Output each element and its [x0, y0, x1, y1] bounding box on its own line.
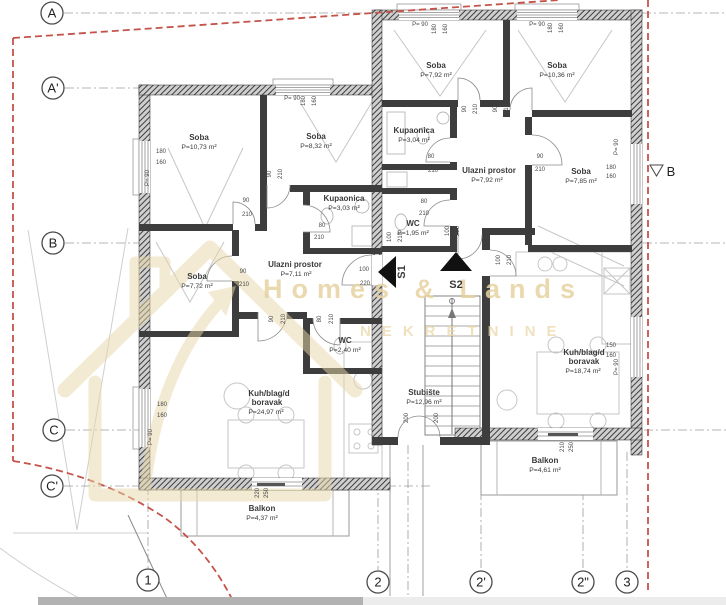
svg-text:2": 2": [577, 575, 589, 590]
watermark-subtitle-text: NEKRETNINE: [360, 323, 568, 340]
svg-text:100: 100: [359, 267, 370, 273]
svg-text:P= 90: P= 90: [148, 428, 154, 445]
svg-text:250: 250: [569, 441, 575, 452]
svg-text:100: 100: [445, 225, 451, 236]
svg-text:2': 2': [476, 575, 486, 590]
svg-text:160: 160: [559, 22, 565, 33]
svg-text:210: 210: [504, 103, 510, 114]
svg-text:210: 210: [314, 235, 325, 241]
floorplan-drawing: Homes & Lands NEKRETNINE S1 S2 B SobaP=1…: [0, 0, 726, 605]
sink-kupaonica-right: [437, 112, 449, 124]
svg-text:Balkon: Balkon: [249, 504, 276, 513]
svg-text:80: 80: [428, 154, 435, 160]
grid-col-2-dblprime: 2": [572, 571, 594, 593]
svg-text:P=7,92 m²: P=7,92 m²: [471, 177, 503, 184]
svg-text:P=12,96 m²: P=12,96 m²: [406, 399, 442, 406]
svg-text:3: 3: [623, 575, 630, 590]
section-marker-b: B: [650, 164, 675, 179]
svg-text:160: 160: [157, 413, 168, 419]
window: [273, 79, 333, 95]
scrollbar-track[interactable]: [363, 597, 726, 605]
wall-top-left-unit: [139, 85, 382, 95]
svg-text:C: C: [49, 423, 58, 438]
svg-text:180: 180: [157, 402, 168, 408]
svg-text:220: 220: [360, 281, 371, 287]
svg-text:210: 210: [473, 103, 479, 114]
svg-text:Ulazni prostor: Ulazni prostor: [462, 166, 516, 175]
svg-text:A': A': [47, 81, 58, 96]
svg-text:Balkon: Balkon: [532, 456, 559, 465]
grid-col-2: 2: [367, 571, 389, 593]
svg-text:P=7,11 m²: P=7,11 m²: [280, 271, 312, 278]
toilet-wc-right: [395, 214, 407, 230]
svg-text:90: 90: [243, 198, 250, 204]
balcony-door: [538, 428, 593, 440]
svg-text:160: 160: [443, 23, 449, 34]
svg-text:200: 200: [404, 412, 410, 423]
svg-text:Soba: Soba: [426, 61, 446, 70]
svg-text:P=4,37 m²: P=4,37 m²: [246, 515, 278, 522]
svg-text:Soba: Soba: [187, 272, 207, 281]
svg-text:Ulazni prostor: Ulazni prostor: [268, 260, 322, 269]
window: [515, 4, 579, 20]
grid-row-a: A: [41, 2, 63, 24]
svg-text:P=24,97 m²: P=24,97 m²: [248, 409, 284, 416]
svg-text:180: 180: [301, 95, 307, 106]
watermark-brand-text: Homes & Lands: [263, 274, 584, 304]
svg-text:210: 210: [239, 282, 250, 288]
svg-text:C': C': [46, 479, 58, 494]
section-marker-label: B: [667, 164, 676, 179]
svg-text:B: B: [49, 236, 58, 251]
svg-text:210: 210: [560, 441, 566, 452]
window: [631, 144, 642, 204]
svg-text:WC: WC: [406, 219, 420, 228]
scrollbar-lead-gap: [0, 597, 38, 605]
svg-text:160: 160: [156, 160, 167, 166]
svg-text:90: 90: [267, 170, 273, 177]
svg-text:P= 90: P= 90: [529, 22, 546, 28]
svg-text:P=10,73 m²: P=10,73 m²: [181, 144, 217, 151]
wall-central-spine: [372, 10, 382, 445]
svg-text:Stubište: Stubište: [408, 388, 440, 397]
s2-label: S2: [449, 279, 462, 291]
svg-text:210: 210: [278, 168, 284, 179]
svg-text:P=7,85 m²: P=7,85 m²: [565, 178, 597, 185]
svg-text:P=3,03 m²: P=3,03 m²: [328, 205, 360, 212]
svg-text:90: 90: [462, 105, 468, 112]
svg-text:160: 160: [606, 353, 617, 359]
svg-text:160: 160: [312, 95, 318, 106]
washer-right: [387, 172, 407, 187]
svg-text:Soba: Soba: [306, 132, 326, 141]
grid-col-2-prime: 2': [470, 571, 492, 593]
svg-text:Soba: Soba: [571, 167, 591, 176]
svg-text:P= 90: P= 90: [412, 22, 429, 28]
grid-row-b: B: [42, 232, 64, 254]
svg-text:180: 180: [606, 165, 617, 171]
svg-text:P= 90: P= 90: [614, 358, 620, 375]
svg-text:100: 100: [496, 254, 502, 265]
svg-text:P=3,04 m²: P=3,04 m²: [398, 137, 430, 144]
svg-text:220: 220: [255, 487, 261, 498]
wall-right-exterior: [631, 10, 642, 455]
svg-text:90: 90: [493, 105, 499, 112]
svg-text:boravak: boravak: [252, 398, 283, 407]
horizontal-scrollbar[interactable]: [0, 597, 726, 605]
svg-text:210: 210: [329, 313, 335, 324]
svg-text:2: 2: [374, 575, 381, 590]
svg-text:P=10,36 m²: P=10,36 m²: [539, 72, 575, 79]
svg-text:Kupaonica: Kupaonica: [324, 194, 365, 203]
svg-text:180: 180: [156, 149, 167, 155]
svg-text:100: 100: [387, 231, 393, 242]
grid-col-3: 3: [616, 571, 638, 593]
svg-text:P=7,72 m²: P=7,72 m²: [181, 283, 213, 290]
svg-text:P=18,74 m²: P=18,74 m²: [565, 368, 601, 375]
section-triangle-icon: [650, 165, 663, 176]
svg-text:Soba: Soba: [189, 133, 209, 142]
room-label-kuhinja-2: Kuh/blag/dboravakP=18,74 m²: [563, 348, 604, 375]
svg-text:P=7,92 m²: P=7,92 m²: [420, 72, 452, 79]
svg-text:P= 90: P= 90: [614, 138, 620, 155]
svg-text:150: 150: [606, 343, 617, 349]
svg-text:180: 180: [432, 23, 438, 34]
svg-text:Kuh/blag/d: Kuh/blag/d: [248, 389, 289, 398]
svg-text:1: 1: [144, 573, 151, 588]
svg-text:Soba: Soba: [547, 61, 567, 70]
svg-text:210: 210: [535, 167, 546, 173]
svg-text:P=4,61 m²: P=4,61 m²: [529, 467, 561, 474]
scrollbar-thumb[interactable]: [38, 597, 363, 605]
window: [397, 4, 461, 20]
svg-text:P=2,40 m²: P=2,40 m²: [329, 347, 361, 354]
svg-text:80: 80: [317, 315, 323, 322]
svg-text:80: 80: [319, 223, 326, 229]
svg-text:210: 210: [242, 212, 253, 218]
svg-text:220: 220: [455, 225, 461, 236]
svg-text:P= 90: P= 90: [145, 169, 151, 186]
svg-text:Kupaonica: Kupaonica: [394, 126, 435, 135]
svg-text:90: 90: [537, 154, 544, 160]
svg-text:180: 180: [548, 22, 554, 33]
svg-text:boravak: boravak: [569, 357, 600, 366]
svg-text:250: 250: [264, 487, 270, 498]
svg-text:200: 200: [434, 412, 440, 423]
svg-text:P= 90: P= 90: [284, 96, 301, 102]
floorplan-canvas: Homes & Lands NEKRETNINE S1 S2 B SobaP=1…: [0, 0, 726, 605]
entry-door-gap-right-unit: [458, 228, 482, 235]
washer-left: [352, 226, 374, 246]
kitchen-door-gap-right: [482, 250, 490, 276]
svg-text:P=8,32 m²: P=8,32 m²: [300, 143, 332, 150]
svg-text:210: 210: [507, 254, 513, 265]
svg-text:210: 210: [398, 231, 404, 242]
grid-row-c: C: [43, 419, 65, 441]
svg-text:A: A: [48, 6, 57, 21]
svg-text:90: 90: [269, 315, 275, 322]
svg-text:160: 160: [606, 174, 617, 180]
svg-text:WC: WC: [338, 336, 352, 345]
svg-text:210: 210: [281, 313, 287, 324]
svg-text:80: 80: [421, 199, 428, 205]
svg-text:210: 210: [419, 211, 430, 217]
window: [631, 317, 642, 377]
svg-text:210: 210: [428, 168, 439, 174]
svg-text:Kuh/blag/d: Kuh/blag/d: [563, 348, 604, 357]
s1-label: S1: [396, 265, 408, 278]
grid-col-1: 1: [137, 569, 159, 591]
svg-text:90: 90: [240, 269, 247, 275]
grid-row-a-prime: A': [42, 77, 64, 99]
grid-row-c-prime: C': [41, 475, 63, 497]
